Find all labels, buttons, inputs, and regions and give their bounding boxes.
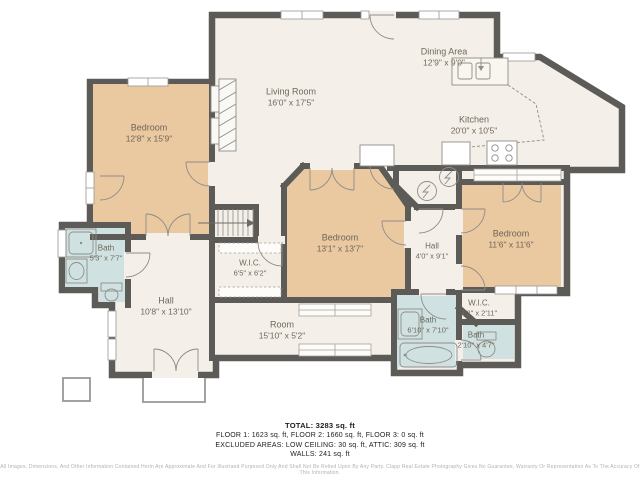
closet-icon	[474, 169, 561, 181]
closet-icon	[299, 344, 371, 356]
window-icon	[419, 11, 459, 19]
porch-step	[63, 378, 90, 401]
area-summary: TOTAL: 3283 sq. ft FLOOR 1: 1623 sq. ft,…	[0, 421, 640, 460]
window-icon	[58, 230, 66, 257]
window-icon	[361, 11, 369, 19]
window-icon	[86, 172, 94, 204]
window-icon	[108, 339, 116, 360]
closet-icon	[219, 243, 281, 253]
closet-icon	[299, 304, 371, 316]
kitchen-sink-icon	[452, 58, 508, 85]
window-icon	[108, 311, 116, 337]
counter-appliance	[442, 142, 470, 165]
window-icon	[128, 78, 168, 86]
bedroom-left-floor	[93, 84, 209, 235]
disclaimer-text: All Images, Dimensions, And Other Inform…	[0, 464, 640, 476]
floor-plan-drawing	[0, 0, 640, 480]
total-area-text: TOTAL: 3283 sq. ft	[0, 421, 640, 431]
counter-cabinet	[360, 145, 394, 166]
walls-area-text: WALLS: 241 sq. ft	[0, 450, 640, 459]
bedroom-center-floor	[286, 168, 406, 297]
entry-porch	[143, 378, 205, 402]
stove-burners-icon	[487, 141, 517, 165]
closet-icon	[219, 287, 281, 297]
window-icon	[495, 286, 557, 294]
floor-plan-page: Bedroom 12'8" x 15'9" Living Room 16'0" …	[0, 0, 640, 480]
porches	[63, 378, 205, 402]
window-icon	[281, 11, 323, 19]
excluded-areas-text: EXCLUDED AREAS: LOW CEILING: 30 sq. ft, …	[0, 441, 640, 450]
floor-areas-text: FLOOR 1: 1623 sq. ft, FLOOR 2: 1660 sq. …	[0, 431, 640, 440]
